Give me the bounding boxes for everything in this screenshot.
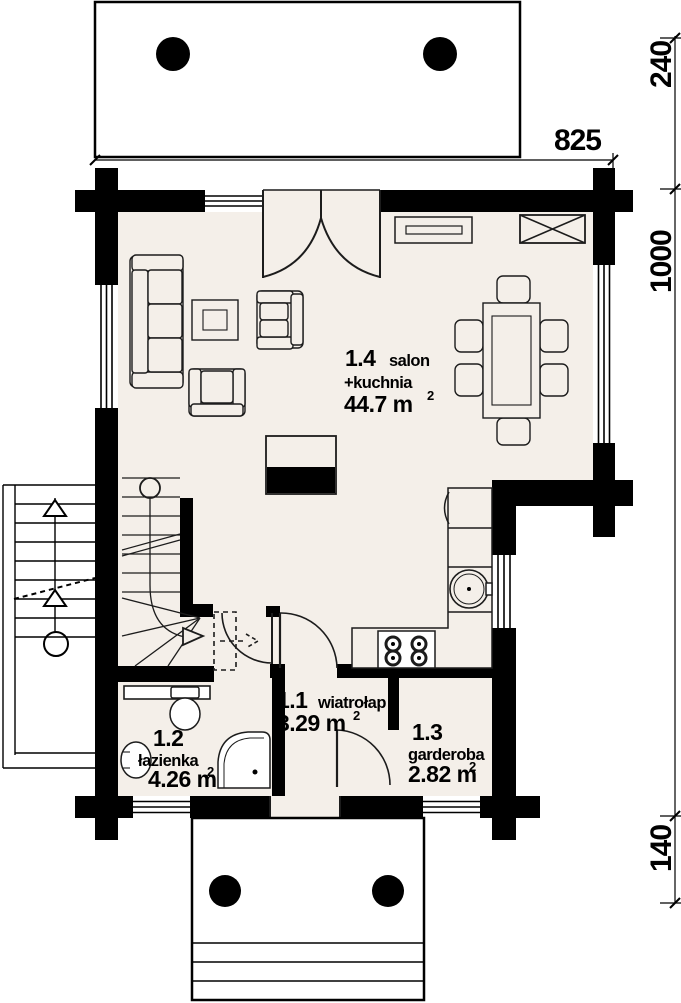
stove <box>378 631 435 668</box>
stair-up-arrow <box>44 500 66 516</box>
dim-terrace: 240 <box>645 41 678 88</box>
dim-depth: 1000 <box>645 230 678 293</box>
wardrobe-wall <box>388 664 399 730</box>
terrace-column-left <box>156 37 190 71</box>
toilet <box>170 687 200 730</box>
dining-chair <box>540 320 568 352</box>
svg-text:44.7 m: 44.7 m <box>344 391 413 417</box>
window-bathroom <box>133 796 190 818</box>
dim-width: 825 <box>554 124 601 157</box>
exterior-stairs <box>3 485 95 768</box>
svg-text:1.3: 1.3 <box>412 719 442 745</box>
svg-text:3.29 m: 3.29 m <box>277 710 346 736</box>
porch-column-right <box>372 875 404 907</box>
svg-text:1.2: 1.2 <box>153 725 183 751</box>
sideboard <box>395 217 472 243</box>
entrance-recess <box>270 796 340 820</box>
window-wardrobe <box>423 796 480 818</box>
shower <box>218 732 270 788</box>
svg-text:2.82 m: 2.82 m <box>408 761 477 787</box>
dining-chair <box>455 364 483 396</box>
dim-porch: 140 <box>645 825 678 872</box>
svg-text:2: 2 <box>427 388 434 403</box>
floor-plan-page: 825 240 1000 140 1.4 salon +kuchnia 44.7… <box>0 0 681 1003</box>
svg-text:2: 2 <box>207 764 214 779</box>
floor-plan-svg: 825 240 1000 140 1.4 salon +kuchnia 44.7… <box>0 0 681 1003</box>
bathroom-top-wall <box>118 666 214 682</box>
stair-wall <box>180 498 193 610</box>
svg-text:2: 2 <box>469 759 476 774</box>
svg-text:2: 2 <box>353 708 360 723</box>
tv-cabinet <box>266 436 336 494</box>
coffee-table <box>192 300 238 340</box>
window-left <box>95 285 118 408</box>
terrace-column-right <box>423 37 457 71</box>
window-right <box>593 265 615 443</box>
svg-text:salon: salon <box>389 352 430 370</box>
svg-text:+kuchnia: +kuchnia <box>344 374 413 392</box>
chimney-shaft <box>520 215 585 243</box>
window-top <box>205 190 262 212</box>
svg-text:1.4: 1.4 <box>345 345 376 371</box>
sofa-two-seat <box>257 291 303 349</box>
armchair <box>189 369 245 416</box>
dining-chair <box>455 320 483 352</box>
terrace-top <box>95 2 520 157</box>
window-kitchen <box>492 555 516 628</box>
dining-chair <box>540 364 568 396</box>
porch-bottom <box>192 818 424 1000</box>
stair-up-arrow <box>44 590 66 606</box>
porch-column-left <box>209 875 241 907</box>
dining-chair <box>497 276 530 303</box>
stair-wall-foot <box>180 604 213 617</box>
sofa-three-seat <box>130 255 183 388</box>
stair-start-marker <box>44 632 68 656</box>
dining-chair <box>497 418 530 445</box>
